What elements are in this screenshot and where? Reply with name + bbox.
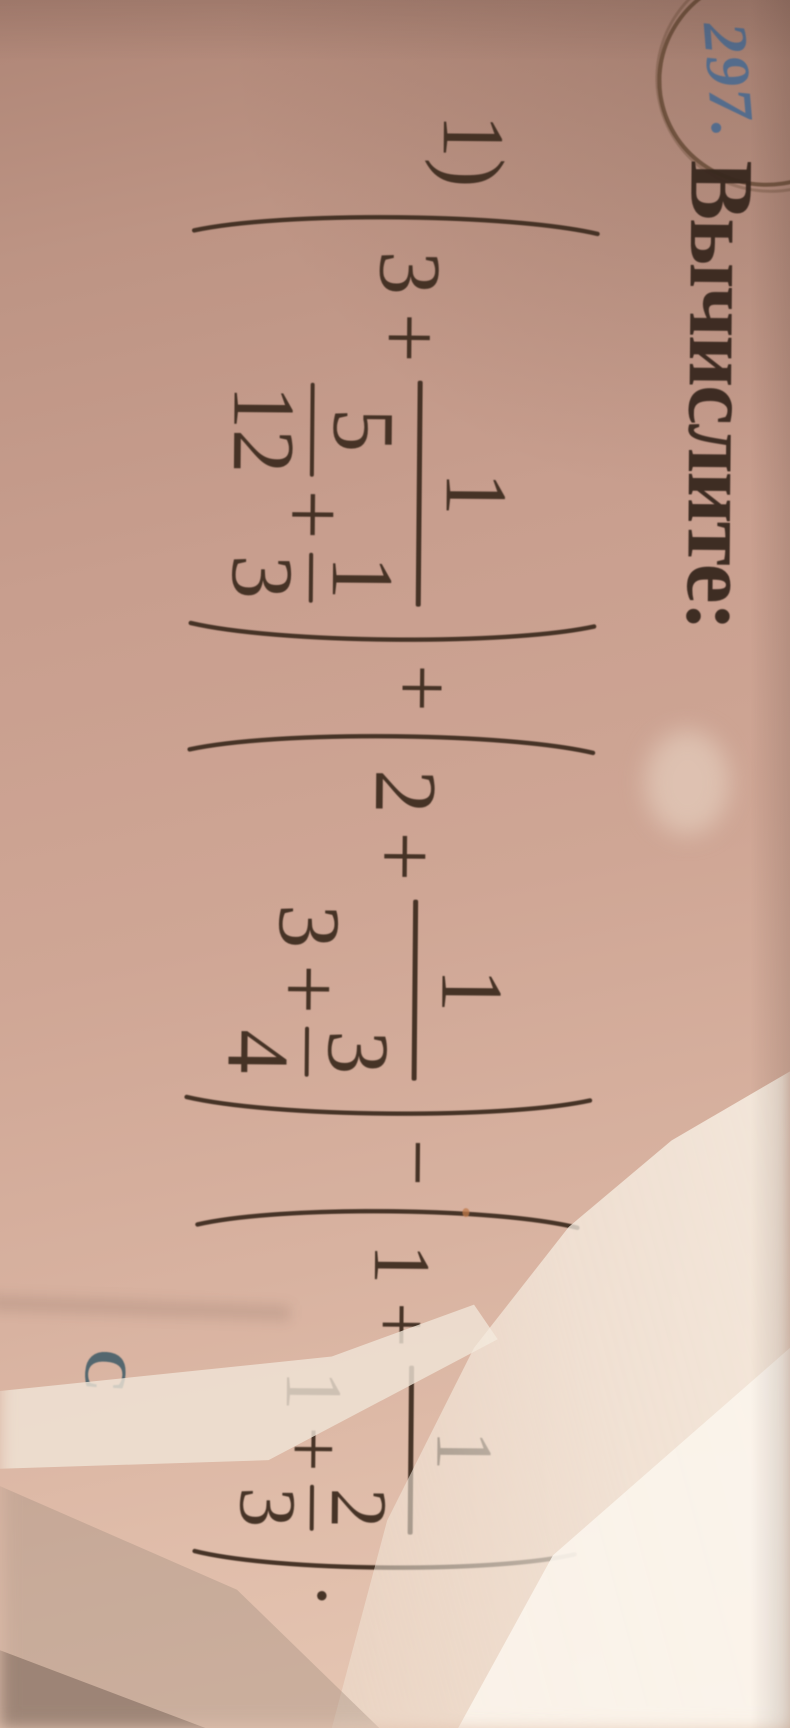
nested-fraction: 1 3 — [217, 555, 407, 601]
denominator-integer: 3 — [263, 904, 353, 949]
nested-fraction: 3 4 — [212, 1029, 402, 1075]
nested-fraction: 2 3 — [225, 1487, 399, 1529]
expression-terminator: . — [298, 1586, 389, 1607]
nested-denominator: 3 — [225, 1487, 307, 1528]
term-2-numerator: 1 — [417, 954, 515, 1027]
problem-number: 297. — [688, 20, 768, 142]
denominator-plus: + — [263, 964, 353, 1014]
term-3-plus: + — [358, 1302, 440, 1348]
term-1-plus: + — [363, 312, 453, 362]
close-paren-icon — [186, 1545, 582, 1584]
textbook-photo: 297. Вычислите: 1) 3 + 1 — [0, 0, 790, 1728]
denominator-plus: + — [267, 489, 357, 539]
term-1-whole: 3 — [363, 250, 453, 295]
term-2-denominator: 3 + 3 4 — [212, 898, 413, 1081]
term-1-numerator: 1 — [422, 457, 520, 530]
term-2: 2 + 1 3 + 3 4 — [178, 720, 602, 1131]
term-1-fraction: 1 5 12 + 1 3 — [216, 379, 520, 607]
exercise-label: 1) — [426, 114, 516, 188]
nested-numerator: 3 — [312, 1030, 402, 1075]
margin-letter: C — [69, 1346, 141, 1395]
nested-numerator: 2 — [316, 1488, 398, 1529]
plus-operator: + — [373, 664, 470, 712]
nested-denominator: 4 — [212, 1029, 302, 1074]
term-3: 1 + 1 1 + 2 3 — [186, 1194, 585, 1584]
nested-numerator: 1 — [316, 555, 406, 600]
term-3-fraction: 1 1 + 2 3 — [225, 1364, 504, 1536]
nested-numerator: 5 — [318, 408, 408, 453]
nested-denominator: 12 — [218, 385, 309, 474]
term-3-numerator: 1 — [413, 1416, 503, 1485]
open-paren-icon — [189, 1194, 585, 1233]
math-expression: 1) 3 + 1 5 12 — [174, 112, 607, 1608]
term-2-fraction: 1 3 + 3 4 — [212, 898, 516, 1082]
nested-fraction: 5 12 — [218, 385, 408, 475]
paper-speck — [462, 1208, 469, 1217]
close-paren-icon — [178, 1091, 599, 1131]
denominator-integer: 1 — [271, 1370, 353, 1411]
term-1-denominator: 5 12 + 1 3 — [216, 379, 417, 606]
term-1: 3 + 1 5 12 + 1 — [182, 201, 606, 656]
open-paren-icon — [186, 201, 607, 241]
minus-operator: − — [369, 1139, 466, 1187]
term-3-whole: 1 — [359, 1244, 441, 1285]
denominator-plus: + — [271, 1426, 353, 1472]
term-2-whole: 2 — [359, 769, 449, 814]
page-content-rotated: 297. Вычислите: 1) 3 + 1 — [0, 0, 790, 1728]
term-3-denominator: 1 + 2 3 — [225, 1364, 410, 1535]
close-paren-icon — [182, 616, 603, 656]
open-paren-icon — [181, 720, 602, 760]
page-title: Вычислите: — [668, 160, 771, 630]
term-2-plus: + — [358, 831, 448, 881]
nested-denominator: 3 — [217, 555, 307, 600]
